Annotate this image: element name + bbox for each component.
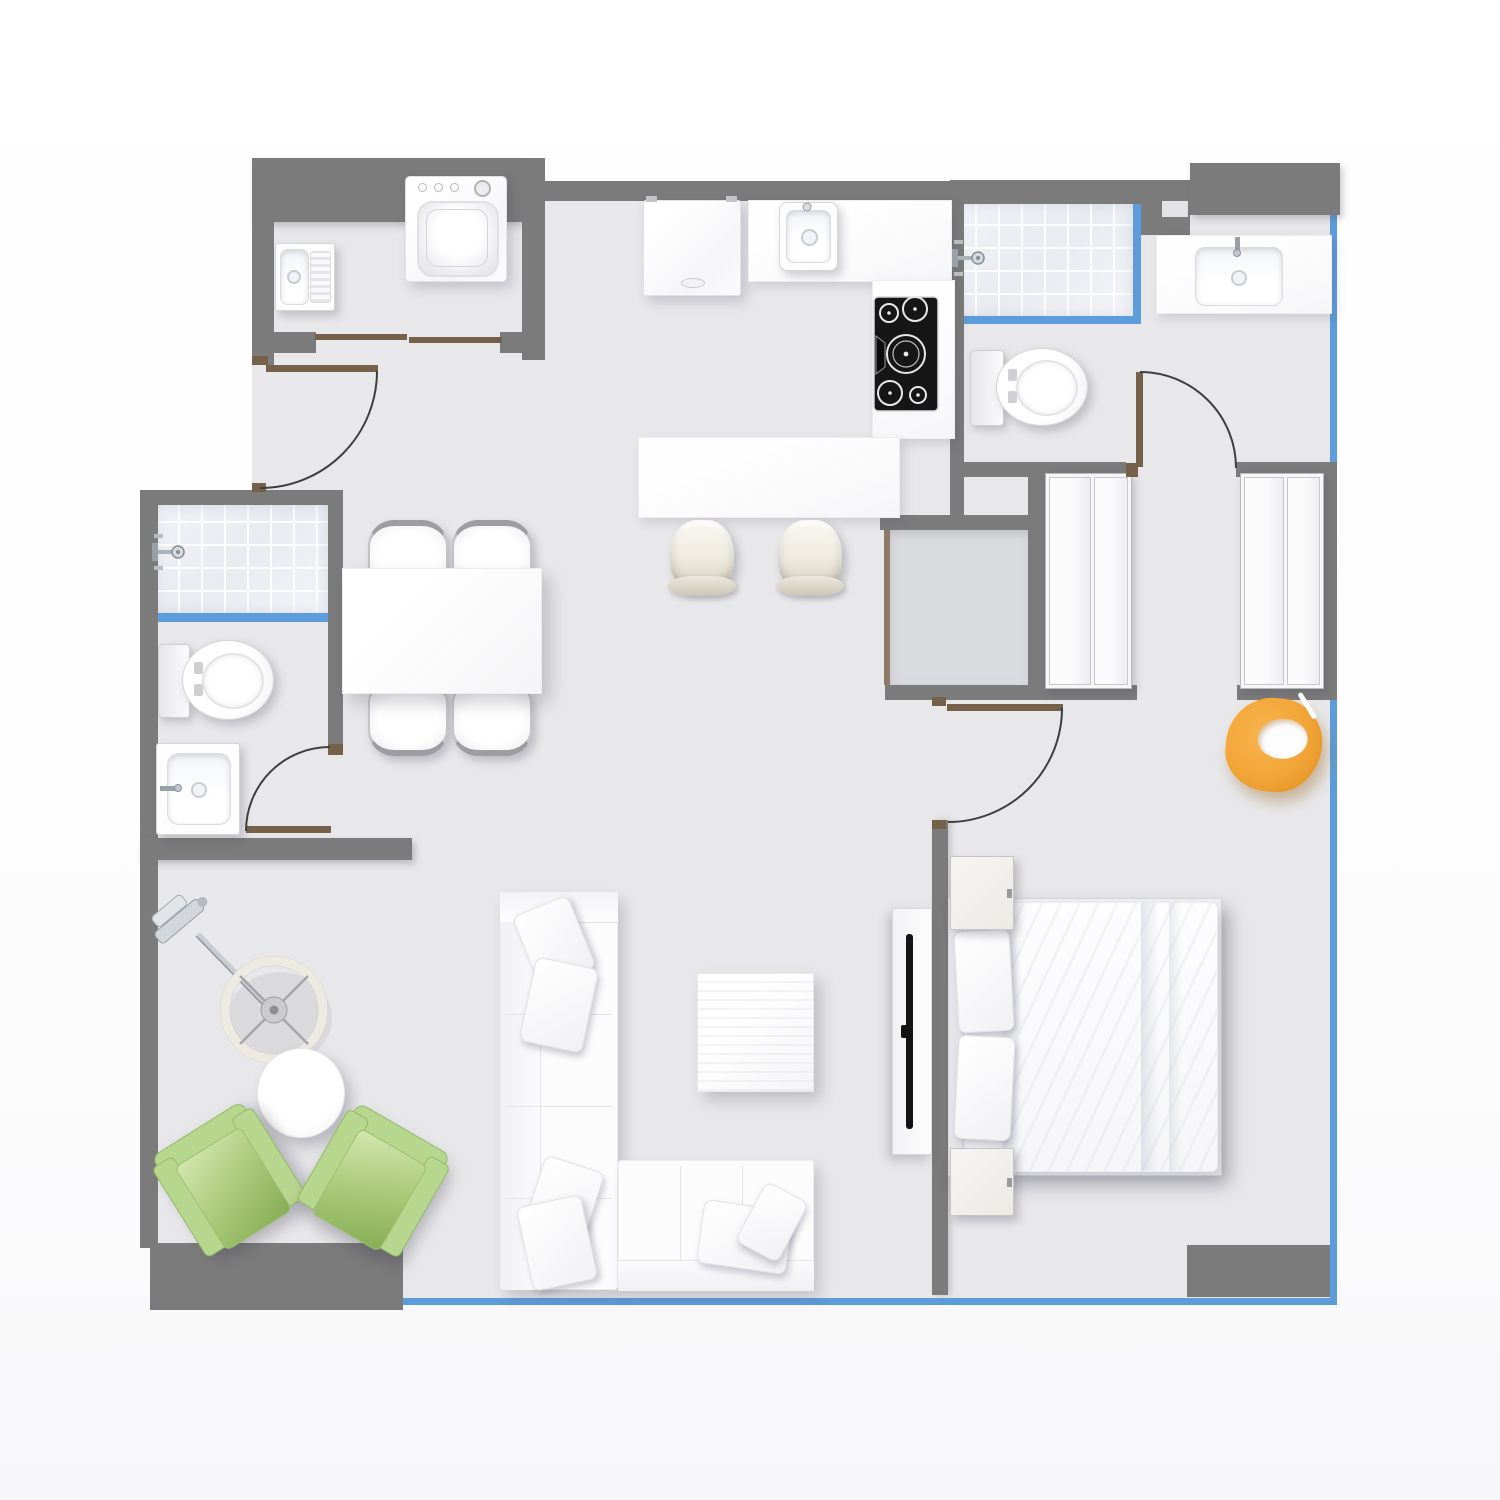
bar-stool-2 bbox=[775, 520, 845, 600]
wardrobe-right bbox=[1240, 473, 1324, 689]
duvet-fold-band bbox=[1169, 903, 1182, 1171]
dining-chair-3 bbox=[368, 686, 448, 756]
arc-floor-lamp bbox=[140, 880, 360, 1075]
round-side-table bbox=[257, 1048, 345, 1138]
vanity-drain bbox=[1231, 270, 1247, 286]
bed-pillow-1 bbox=[953, 929, 1014, 1034]
wall-kitchen-top bbox=[543, 181, 967, 201]
entry-door-stub bbox=[252, 483, 266, 492]
toilet-hinge bbox=[1008, 369, 1017, 381]
kitchen-sink bbox=[779, 202, 838, 271]
wardrobe-door bbox=[1094, 477, 1128, 685]
entry-door-stub bbox=[252, 356, 268, 365]
washbasin-drain bbox=[191, 782, 207, 798]
wall-laundry-kitchen bbox=[522, 158, 545, 360]
washer-door bbox=[417, 201, 499, 277]
wall-corner-bottom-left bbox=[150, 1243, 403, 1310]
dining-chair-4 bbox=[452, 686, 532, 756]
shower-right-glass-bottom bbox=[952, 316, 1141, 324]
wall-block-top-right bbox=[1190, 163, 1340, 215]
wardrobe-left bbox=[1045, 473, 1132, 689]
tv-console bbox=[892, 908, 932, 1155]
wall-storage-top bbox=[880, 515, 1045, 530]
fridge-hinge-left bbox=[646, 196, 657, 202]
refrigerator bbox=[643, 200, 741, 296]
bar-stool-base bbox=[776, 576, 844, 596]
wall-below-bath-left bbox=[140, 838, 412, 860]
utility-sink-drainboard bbox=[310, 251, 331, 303]
floor-plan bbox=[0, 0, 1500, 1500]
wall-niche bbox=[1162, 201, 1188, 217]
wall-wardrobe-right bbox=[1322, 462, 1337, 700]
toilet-left bbox=[158, 638, 276, 722]
shower-left-glass bbox=[155, 613, 328, 622]
laundry-slider-panel bbox=[409, 337, 502, 343]
wall-slider-stub-left bbox=[274, 332, 316, 353]
washer-knob-2 bbox=[434, 183, 443, 192]
shower-right-tiles bbox=[952, 202, 1133, 318]
bedroom-door-stub bbox=[932, 820, 946, 829]
wardrobe-door bbox=[1049, 477, 1091, 685]
wall-bedroom-divider bbox=[932, 820, 948, 1295]
wall-bath-right-top-a bbox=[950, 180, 1141, 204]
cooktop bbox=[873, 296, 939, 412]
toilet-right bbox=[970, 344, 1088, 428]
fridge-logo bbox=[681, 278, 705, 288]
washer-knob-1 bbox=[418, 183, 427, 192]
wardrobe-door bbox=[1244, 477, 1284, 685]
wardrobe-door bbox=[1287, 477, 1320, 685]
toilet-seat bbox=[202, 653, 264, 709]
laundry-slider-panel bbox=[315, 334, 407, 340]
wall-slider-stub-right bbox=[500, 332, 522, 353]
washing-machine bbox=[405, 176, 507, 282]
nightstand-top bbox=[950, 856, 1014, 930]
storage-closet-floor bbox=[886, 530, 1028, 685]
bed-duvet bbox=[1002, 902, 1218, 1172]
toilet-hinge bbox=[194, 662, 203, 674]
bar-stool-base bbox=[668, 576, 736, 596]
wall-bath-left-right bbox=[328, 490, 343, 746]
utility-sink-drain bbox=[287, 270, 301, 284]
toilet-hinge bbox=[194, 684, 203, 696]
washer-dial bbox=[474, 180, 491, 197]
bedroom-door-leaf bbox=[947, 704, 1063, 711]
bath-left-door-leaf bbox=[246, 826, 331, 833]
bar-stool-1 bbox=[667, 520, 737, 600]
shower-right-glass-side bbox=[1133, 202, 1141, 318]
bed-pillow-2 bbox=[953, 1035, 1015, 1142]
tv-mount bbox=[901, 1025, 908, 1038]
shower-left-tiles bbox=[155, 505, 328, 615]
bath-left-door-stub bbox=[328, 744, 343, 755]
toilet-hinge bbox=[1008, 391, 1017, 403]
window-wall-bottom bbox=[403, 1298, 1337, 1305]
utility-sink bbox=[275, 243, 335, 311]
wall-bath-left-top bbox=[140, 490, 343, 505]
nightstand-bottom bbox=[950, 1148, 1014, 1216]
counter-bottom-arm bbox=[638, 437, 900, 518]
vanity-counter bbox=[1156, 235, 1332, 314]
bath-right-door-leaf bbox=[1136, 372, 1143, 467]
dining-table bbox=[342, 568, 542, 694]
storage-closet-panel bbox=[884, 520, 890, 685]
fridge-hinge-right bbox=[726, 196, 737, 202]
wall-wardrobe-left bbox=[1028, 462, 1045, 700]
kitchen-sink-drain bbox=[801, 229, 818, 246]
wall-corner-bottom-right bbox=[1187, 1245, 1330, 1297]
entry-door-leaf bbox=[266, 365, 378, 372]
toilet-seat bbox=[1016, 360, 1078, 416]
wall-laundry-left bbox=[252, 158, 274, 365]
coffee-table bbox=[697, 973, 814, 1092]
bedroom-door-stub bbox=[932, 697, 946, 706]
washer-knob-3 bbox=[450, 183, 459, 192]
duvet-fold-band bbox=[1141, 903, 1159, 1171]
orange-lounge-chair bbox=[1221, 693, 1326, 797]
window-wall-right bbox=[1330, 215, 1337, 1302]
washbasin-left bbox=[156, 743, 240, 835]
